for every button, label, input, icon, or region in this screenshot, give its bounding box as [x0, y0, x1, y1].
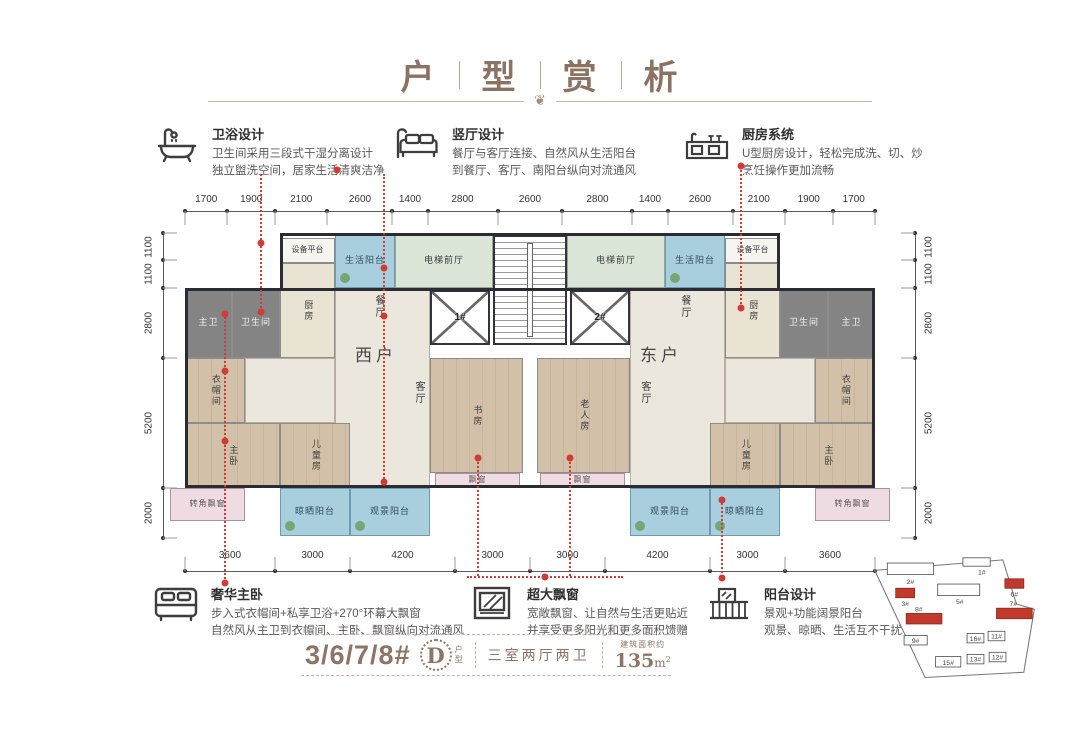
- room-label: 客厅: [637, 381, 652, 405]
- sitemap-building-6#: [1005, 579, 1024, 588]
- bed-icon: [152, 584, 200, 639]
- room-view-balcony-west: 观景阳台: [350, 488, 430, 536]
- room-elder-room-east: 老人房: [537, 358, 630, 473]
- sitemap-building-label: 13#: [970, 657, 982, 664]
- sitemap-building-label: 15#: [943, 660, 955, 667]
- room-life-balcony-east: 生活阳台: [665, 233, 725, 288]
- room-label: 电梯前厅: [596, 255, 636, 267]
- sitemap-building-label: 9#: [912, 638, 920, 645]
- dimensions-bottom: 36003000420030003000420030003600: [185, 549, 875, 589]
- callout-dot: [475, 455, 482, 462]
- elevator: 1#: [430, 290, 490, 345]
- floor-area-value: 135m2: [615, 650, 671, 672]
- summary-separator: [475, 642, 476, 668]
- callout-connector: [477, 462, 479, 576]
- callout-dot: [381, 313, 388, 320]
- unit-type-suffix: 户 型: [455, 645, 463, 665]
- dimension-label: 2800: [586, 194, 608, 205]
- dimension-label: 4200: [391, 550, 413, 561]
- sitemap-building-label: 5#: [956, 599, 964, 606]
- room-label: 晾晒阳台: [295, 506, 335, 518]
- room-label: 卫生间: [241, 317, 271, 329]
- sitemap-building-label: 2#: [907, 579, 915, 586]
- callout-dot: [381, 265, 388, 272]
- room-bay-window-east: 飘窗: [540, 473, 625, 488]
- feature-line: 宽敞飘窗、让自然与生活更贴近: [527, 606, 688, 623]
- room-label: 卫生间: [789, 317, 819, 329]
- summary-separator: [602, 642, 603, 668]
- room-label: 老人房: [578, 399, 590, 432]
- unit-type-badge: D: [420, 639, 452, 671]
- room-master-bedroom-west: 主卧: [185, 423, 280, 488]
- sitemap-building-label: 6#: [1011, 592, 1019, 599]
- room-master-bedroom-east: 主卧: [780, 423, 875, 488]
- sitemap-building-5#: [938, 584, 980, 596]
- title-char: 析: [644, 50, 680, 99]
- callout-connector: [569, 462, 571, 576]
- room-elevator-lobby-west: 电梯前厅: [395, 233, 493, 288]
- callout-dot: [258, 240, 265, 247]
- sitemap-building-label: 7#: [1010, 601, 1018, 608]
- floor-area-prefix: 建筑面积约: [620, 639, 665, 650]
- room-label: 生活阳台: [675, 255, 715, 267]
- room-kids-room-west: 儿童房: [280, 423, 350, 488]
- callout-dot: [567, 455, 574, 462]
- callout-dot: [738, 305, 745, 312]
- feature-master-bedroom: 奢华主卧 步入式衣帽间+私享卫浴+270°环幕大飘窗 自然风从主卫到衣帽间、主卧…: [152, 584, 452, 639]
- sitemap-building-1#: [963, 558, 990, 566]
- site-location-map: 2#1#5#3#6#8#7#9#15#16#11#13#12#: [860, 553, 1070, 718]
- dimension-label: 1400: [639, 194, 661, 205]
- unit-summary-bar: 3/6/7/8# D 户 型 三室两厅两卫 建筑面积约 135m2: [301, 634, 671, 676]
- sitemap-building-label: 16#: [970, 636, 982, 643]
- sitemap-building-label: 3#: [901, 601, 909, 608]
- dimension-label: 1400: [399, 194, 421, 205]
- dimension-label: 4200: [646, 550, 668, 561]
- floral-ornament-icon: ❦: [524, 93, 556, 107]
- room-equipment-platform-west: 设备平台: [280, 238, 335, 263]
- title-char: 户: [401, 50, 437, 99]
- feature-line: U型厨房设计，轻松完成洗、切、炒: [742, 146, 923, 163]
- window-icon: [468, 584, 516, 639]
- title-char: 型: [482, 50, 518, 99]
- room-label: 儿童房: [739, 439, 751, 472]
- dimension-label: 1700: [195, 194, 217, 205]
- room-label: 儿童房: [309, 439, 321, 472]
- sitemap-building-label: 1#: [978, 570, 986, 577]
- room-label: 衣帽间: [839, 374, 851, 407]
- dimension-label: 2100: [748, 194, 770, 205]
- room-closet-east: 衣帽间: [815, 358, 875, 423]
- callout-dot: [738, 163, 745, 170]
- room-master-bath-east: 主卫: [828, 288, 875, 358]
- room-corner-bay-west: 转角飘窗: [170, 488, 245, 521]
- unit-type-letter: D: [426, 643, 444, 668]
- feature-line: 烹饪操作更加流畅: [742, 163, 923, 180]
- room-label: 厨房: [747, 300, 759, 322]
- feature-line: 到餐厅、客厅、南阳台纵向对流通风: [452, 163, 636, 180]
- dimension-label: 2800: [451, 194, 473, 205]
- feature-line: 步入式衣帽间+私享卫浴+270°环幕大飘窗: [211, 606, 464, 623]
- room-equipment-platform-east: 设备平台: [725, 238, 780, 263]
- dimension-label: 2100: [290, 194, 312, 205]
- dimension-label: 3000: [736, 550, 758, 561]
- room-label: 转角飘窗: [190, 499, 226, 509]
- callout-dot: [719, 575, 726, 582]
- room-label: 书房: [471, 405, 483, 427]
- unit-type-suffix-char: 户: [455, 645, 463, 655]
- dimensions-top: 1700190021002600140028002600280014002600…: [185, 194, 875, 234]
- sitemap-building-label: 11#: [991, 634, 1002, 641]
- callout-connector: [721, 503, 723, 577]
- dimension-label: 2600: [519, 194, 541, 205]
- room-label: 主卧: [227, 445, 239, 467]
- room-label: 设备平台: [292, 245, 324, 255]
- dimension-label: 3000: [556, 550, 578, 561]
- room-corridor-west: [245, 358, 335, 423]
- room-label: 衣帽间: [209, 374, 221, 407]
- room-layout: 三室两厅两卫: [488, 645, 590, 665]
- room-label: 餐厅: [677, 295, 692, 319]
- room-closet-west: 衣帽间: [185, 358, 245, 423]
- dimension-label: 2000: [144, 502, 155, 524]
- callout-dot: [334, 167, 341, 174]
- callout-connector: [383, 174, 385, 482]
- sofa-lamp-icon: [393, 124, 441, 179]
- floor-plan-page: 户型赏析 ❦ 卫浴设计 卫生间采用三段式干湿分离设计 独立盥洗空间，居家生活清爽…: [0, 0, 1080, 735]
- title-separator: [621, 61, 622, 89]
- room-bathroom-east: 卫生间: [780, 288, 828, 358]
- dimension-label: 3600: [819, 550, 841, 561]
- dimension-label: 1700: [843, 194, 865, 205]
- sitemap-building-label: 12#: [992, 655, 1004, 662]
- callout-dot: [222, 580, 229, 587]
- room-label: 飘窗: [574, 475, 592, 485]
- stairwell: [493, 235, 567, 345]
- dimensions-right: 11001100280052002000: [895, 233, 943, 538]
- title-char: 赏: [563, 50, 599, 99]
- dimension-label: 5200: [144, 412, 155, 434]
- title-separator: [540, 61, 541, 89]
- dimension-label: 2600: [689, 194, 711, 205]
- balcony-icon: [705, 584, 753, 639]
- elevator: 2#: [570, 290, 630, 345]
- feature-title: 奢华主卧: [211, 584, 464, 603]
- building-numbers: 3/6/7/8#: [305, 640, 411, 671]
- room-kitchen-west: 厨房: [280, 263, 335, 358]
- elevator-label: 2#: [572, 292, 628, 343]
- callout-dot: [222, 438, 229, 445]
- callout-connector: [224, 312, 226, 583]
- sitemap-building-label: 8#: [915, 606, 923, 613]
- dimension-label: 3600: [219, 550, 241, 561]
- callout-dot: [222, 368, 229, 375]
- feature-line: 卫生间采用三段式干湿分离设计: [212, 146, 385, 163]
- room-drying-balcony-west: 晾晒阳台: [280, 488, 350, 536]
- unit-type-suffix-char: 型: [455, 655, 463, 665]
- sitemap-building-2#: [887, 563, 933, 575]
- room-corner-bay-east: 转角飘窗: [815, 488, 890, 521]
- room-kids-room-east: 儿童房: [710, 423, 780, 488]
- room-corridor-east: [725, 358, 815, 423]
- sitemap-building-8#: [906, 613, 942, 624]
- kitchen-icon: [683, 124, 731, 179]
- room-label: 生活阳台: [345, 255, 385, 267]
- dimension-label: 3000: [301, 550, 323, 561]
- room-life-balcony-west: 生活阳台: [335, 233, 395, 288]
- floor-plan: 设备平台生活阳台电梯前厅主卫卫生间厨房衣帽间主卧儿童房书房飘窗转角飘窗晾晒阳台观…: [185, 233, 875, 538]
- sitemap-building-7#: [997, 608, 1033, 619]
- bathtub-icon: [153, 124, 201, 179]
- dimension-label: 3000: [481, 550, 503, 561]
- room-kitchen-east: 厨房: [725, 263, 780, 358]
- callout-dot: [222, 311, 229, 318]
- room-bathroom-west: 卫生间: [232, 288, 280, 358]
- unit-label: 西户: [355, 341, 397, 366]
- dimension-label: 1100: [144, 236, 155, 258]
- dimension-label: 2800: [924, 312, 935, 334]
- feature-title: 厨房系统: [742, 124, 923, 143]
- room-label: 观景阳台: [370, 506, 410, 518]
- dimension-label: 1100: [144, 263, 155, 285]
- room-label: 转角飘窗: [835, 499, 871, 509]
- dimension-label: 1100: [924, 263, 935, 285]
- title-divider: ❦: [208, 101, 872, 102]
- feature-line: 独立盥洗空间，居家生活清爽洁净: [212, 163, 385, 180]
- room-label: 主卧: [822, 445, 834, 467]
- room-label: 电梯前厅: [424, 255, 464, 267]
- room-view-balcony-east: 观景阳台: [630, 488, 710, 536]
- title-separator: [459, 61, 460, 89]
- sitemap-building-3#: [896, 588, 915, 597]
- callout-dot: [542, 574, 549, 581]
- dimension-label: 1900: [798, 194, 820, 205]
- room-label: 主卫: [198, 317, 218, 329]
- room-label: 主卫: [841, 317, 861, 329]
- dimension-label: 2800: [144, 312, 155, 334]
- room-elevator-lobby-east: 电梯前厅: [567, 233, 665, 288]
- room-label: 晾晒阳台: [725, 506, 765, 518]
- dimension-label: 5200: [924, 412, 935, 434]
- dimension-label: 2600: [349, 194, 371, 205]
- elevator-label: 1#: [432, 292, 488, 343]
- room-label: 客厅: [411, 381, 426, 405]
- dimension-label: 2000: [924, 502, 935, 524]
- feature-line: 餐厅与客厅连接、自然风从生活阳台: [452, 146, 636, 163]
- callout-dot: [381, 479, 388, 486]
- unit-label: 东户: [640, 341, 682, 366]
- feature-title: 超大飘窗: [527, 584, 688, 603]
- callout-connector: [740, 166, 742, 308]
- room-label: 观景阳台: [650, 506, 690, 518]
- feature-vertical-hall-design: 竖厅设计 餐厅与客厅连接、自然风从生活阳台 到餐厅、客厅、南阳台纵向对流通风: [393, 124, 693, 179]
- feature-kitchen-system: 厨房系统 U型厨房设计，轻松完成洗、切、炒 烹饪操作更加流畅: [683, 124, 983, 179]
- floor-area: 建筑面积约 135m2: [615, 639, 671, 672]
- room-label: 厨房: [302, 300, 314, 322]
- dimension-label: 1100: [924, 236, 935, 258]
- callout-dot: [258, 309, 265, 316]
- feature-title: 卫浴设计: [212, 124, 385, 143]
- feature-title: 竖厅设计: [452, 124, 636, 143]
